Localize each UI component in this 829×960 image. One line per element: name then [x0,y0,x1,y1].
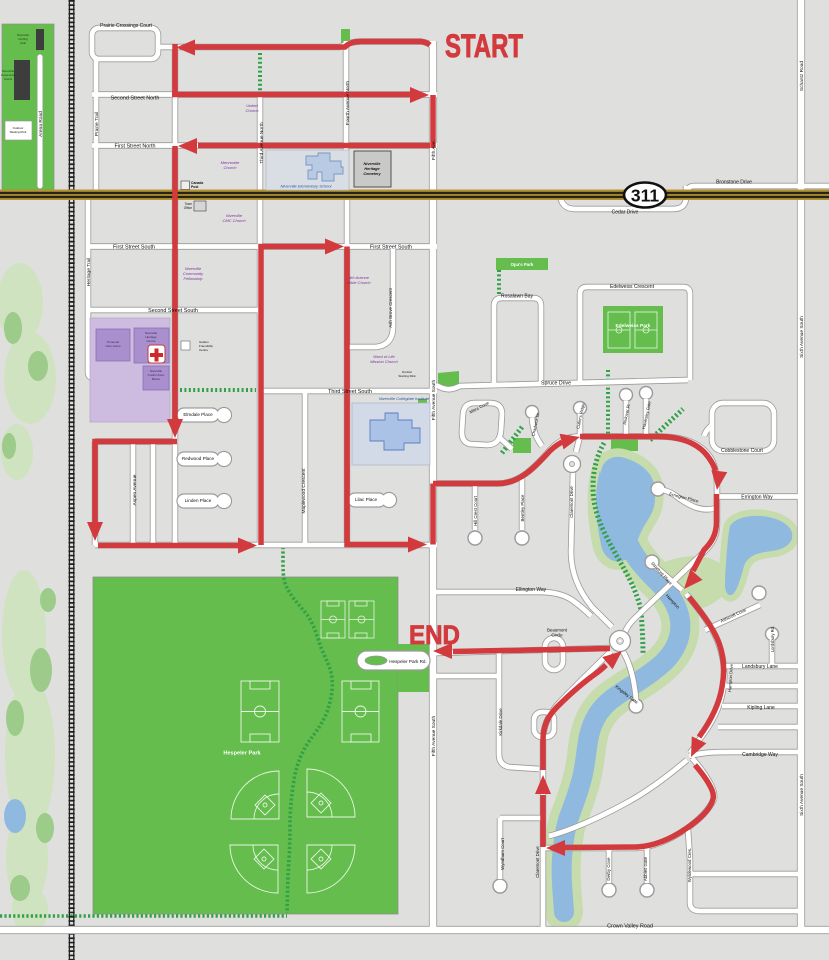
svg-text:Edelweiss Crescent: Edelweiss Crescent [610,284,655,290]
svg-text:Centre: Centre [199,348,208,352]
svg-text:Schantz Road: Schantz Road [799,61,805,91]
svg-text:Ash Grove Crescent: Ash Grove Crescent [388,287,393,327]
svg-text:Ellington Way: Ellington Way [516,587,547,593]
svg-text:Bronstone Drive: Bronstone Drive [716,180,752,186]
svg-text:Bentley Place: Bentley Place [520,494,525,521]
svg-text:Aspen Avenue: Aspen Avenue [132,474,138,505]
svg-text:Fifth Avenue South: Fifth Avenue South [431,715,437,756]
svg-text:Fifth Ave.: Fifth Ave. [431,140,437,160]
svg-text:First Street South: First Street South [113,245,155,251]
svg-text:Crown Valley Road: Crown Valley Road [607,924,653,930]
svg-text:Mission Church: Mission Church [370,359,398,364]
svg-text:Starting Rink: Starting Rink [398,374,416,378]
svg-text:Errington Way: Errington Way [741,495,773,501]
svg-text:Kirkdale Drive: Kirkdale Drive [498,708,503,736]
svg-text:Church: Church [224,165,238,170]
svg-text:Hespeler Park: Hespeler Park [223,751,261,757]
svg-text:Hespeler Park Rd.: Hespeler Park Rd. [389,659,427,664]
svg-text:Heritage Trail: Heritage Trail [86,258,92,287]
svg-text:CMC Church: CMC Church [222,218,246,223]
svg-text:Arena: Arena [4,77,12,81]
svg-text:Care Home: Care Home [105,344,121,348]
svg-text:Kipling Lane: Kipling Lane [747,705,775,711]
svg-text:Second Street North: Second Street North [111,96,160,102]
svg-text:Cemetery: Cemetery [363,172,381,176]
svg-text:Redwood Place: Redwood Place [182,456,215,461]
svg-text:END: END [409,620,460,650]
svg-text:Claremont Drive: Claremont Drive [569,486,574,518]
svg-text:311: 311 [631,186,659,206]
svg-text:Hill Crest Court: Hill Crest Court [473,495,478,526]
svg-text:Fifth Avenue South: Fifth Avenue South [431,379,437,420]
svg-text:Prairie Trail: Prairie Trail [94,112,100,136]
svg-text:Third Avenue North: Third Avenue North [259,122,265,164]
svg-text:Niverville: Niverville [364,162,381,166]
svg-text:Abbies Gate: Abbies Gate [643,856,648,881]
svg-text:Manor: Manor [152,377,161,381]
svg-text:Cambridge Way: Cambridge Way [742,752,778,758]
svg-text:Office: Office [184,206,192,210]
svg-text:Cobblestone Court: Cobblestone Court [721,448,763,454]
svg-text:Third Street South: Third Street South [328,389,372,395]
svg-text:Lordsbury Rd.: Lordsbury Rd. [770,626,775,652]
svg-text:First Street South: First Street South [370,245,412,251]
svg-text:Skating Rink: Skating Rink [10,130,27,134]
svg-text:Church: Church [246,108,260,113]
svg-text:Derby Cove: Derby Cove [606,857,611,881]
svg-text:Maplewood Crescent: Maplewood Crescent [301,468,307,514]
svg-text:Club: Club [20,41,27,45]
svg-text:Wyndham Court: Wyndham Court [500,837,505,869]
svg-text:Cedar Drive: Cedar Drive [612,210,639,216]
svg-text:Post: Post [191,185,199,189]
svg-text:Circle: Circle [551,633,563,638]
svg-text:Arena Road: Arena Road [38,111,44,137]
svg-text:Sixth Avenue South: Sixth Avenue South [799,316,805,358]
svg-text:Niverville Collegiate Institut: Niverville Collegiate Institute [379,396,430,401]
svg-text:Niverville Elementary School: Niverville Elementary School [281,184,332,189]
svg-text:Landsbury Lane: Landsbury Lane [742,664,778,670]
svg-text:Spruce Drive: Spruce Drive [541,381,571,387]
svg-text:Claremont Drive: Claremont Drive [535,846,540,878]
svg-text:Wyldewood Cres.: Wyldewood Cres. [687,848,692,882]
svg-text:Rosalawn Bay: Rosalawn Bay [501,294,533,300]
svg-text:Linden Place: Linden Place [185,498,212,503]
svg-text:Elmdale Place: Elmdale Place [183,412,213,417]
svg-text:START: START [445,28,523,64]
svg-text:Heritage: Heritage [364,167,379,171]
svg-text:Lilac Place: Lilac Place [355,497,378,502]
svg-text:Fourth Avenue North: Fourth Avenue North [345,81,351,126]
svg-text:Second Street South: Second Street South [148,308,198,314]
svg-text:First Street North: First Street North [114,144,155,150]
svg-text:Prairie Crossings Court: Prairie Crossings Court [100,23,152,29]
svg-text:Fellowship: Fellowship [184,276,204,281]
svg-text:Sixth Avenue South: Sixth Avenue South [799,774,805,816]
svg-text:Centre: Centre [146,339,155,343]
svg-text:Edelweiss Park: Edelweiss Park [616,323,651,329]
svg-text:Bible Church: Bible Church [348,280,372,285]
svg-text:Opa's Park: Opa's Park [511,262,534,267]
